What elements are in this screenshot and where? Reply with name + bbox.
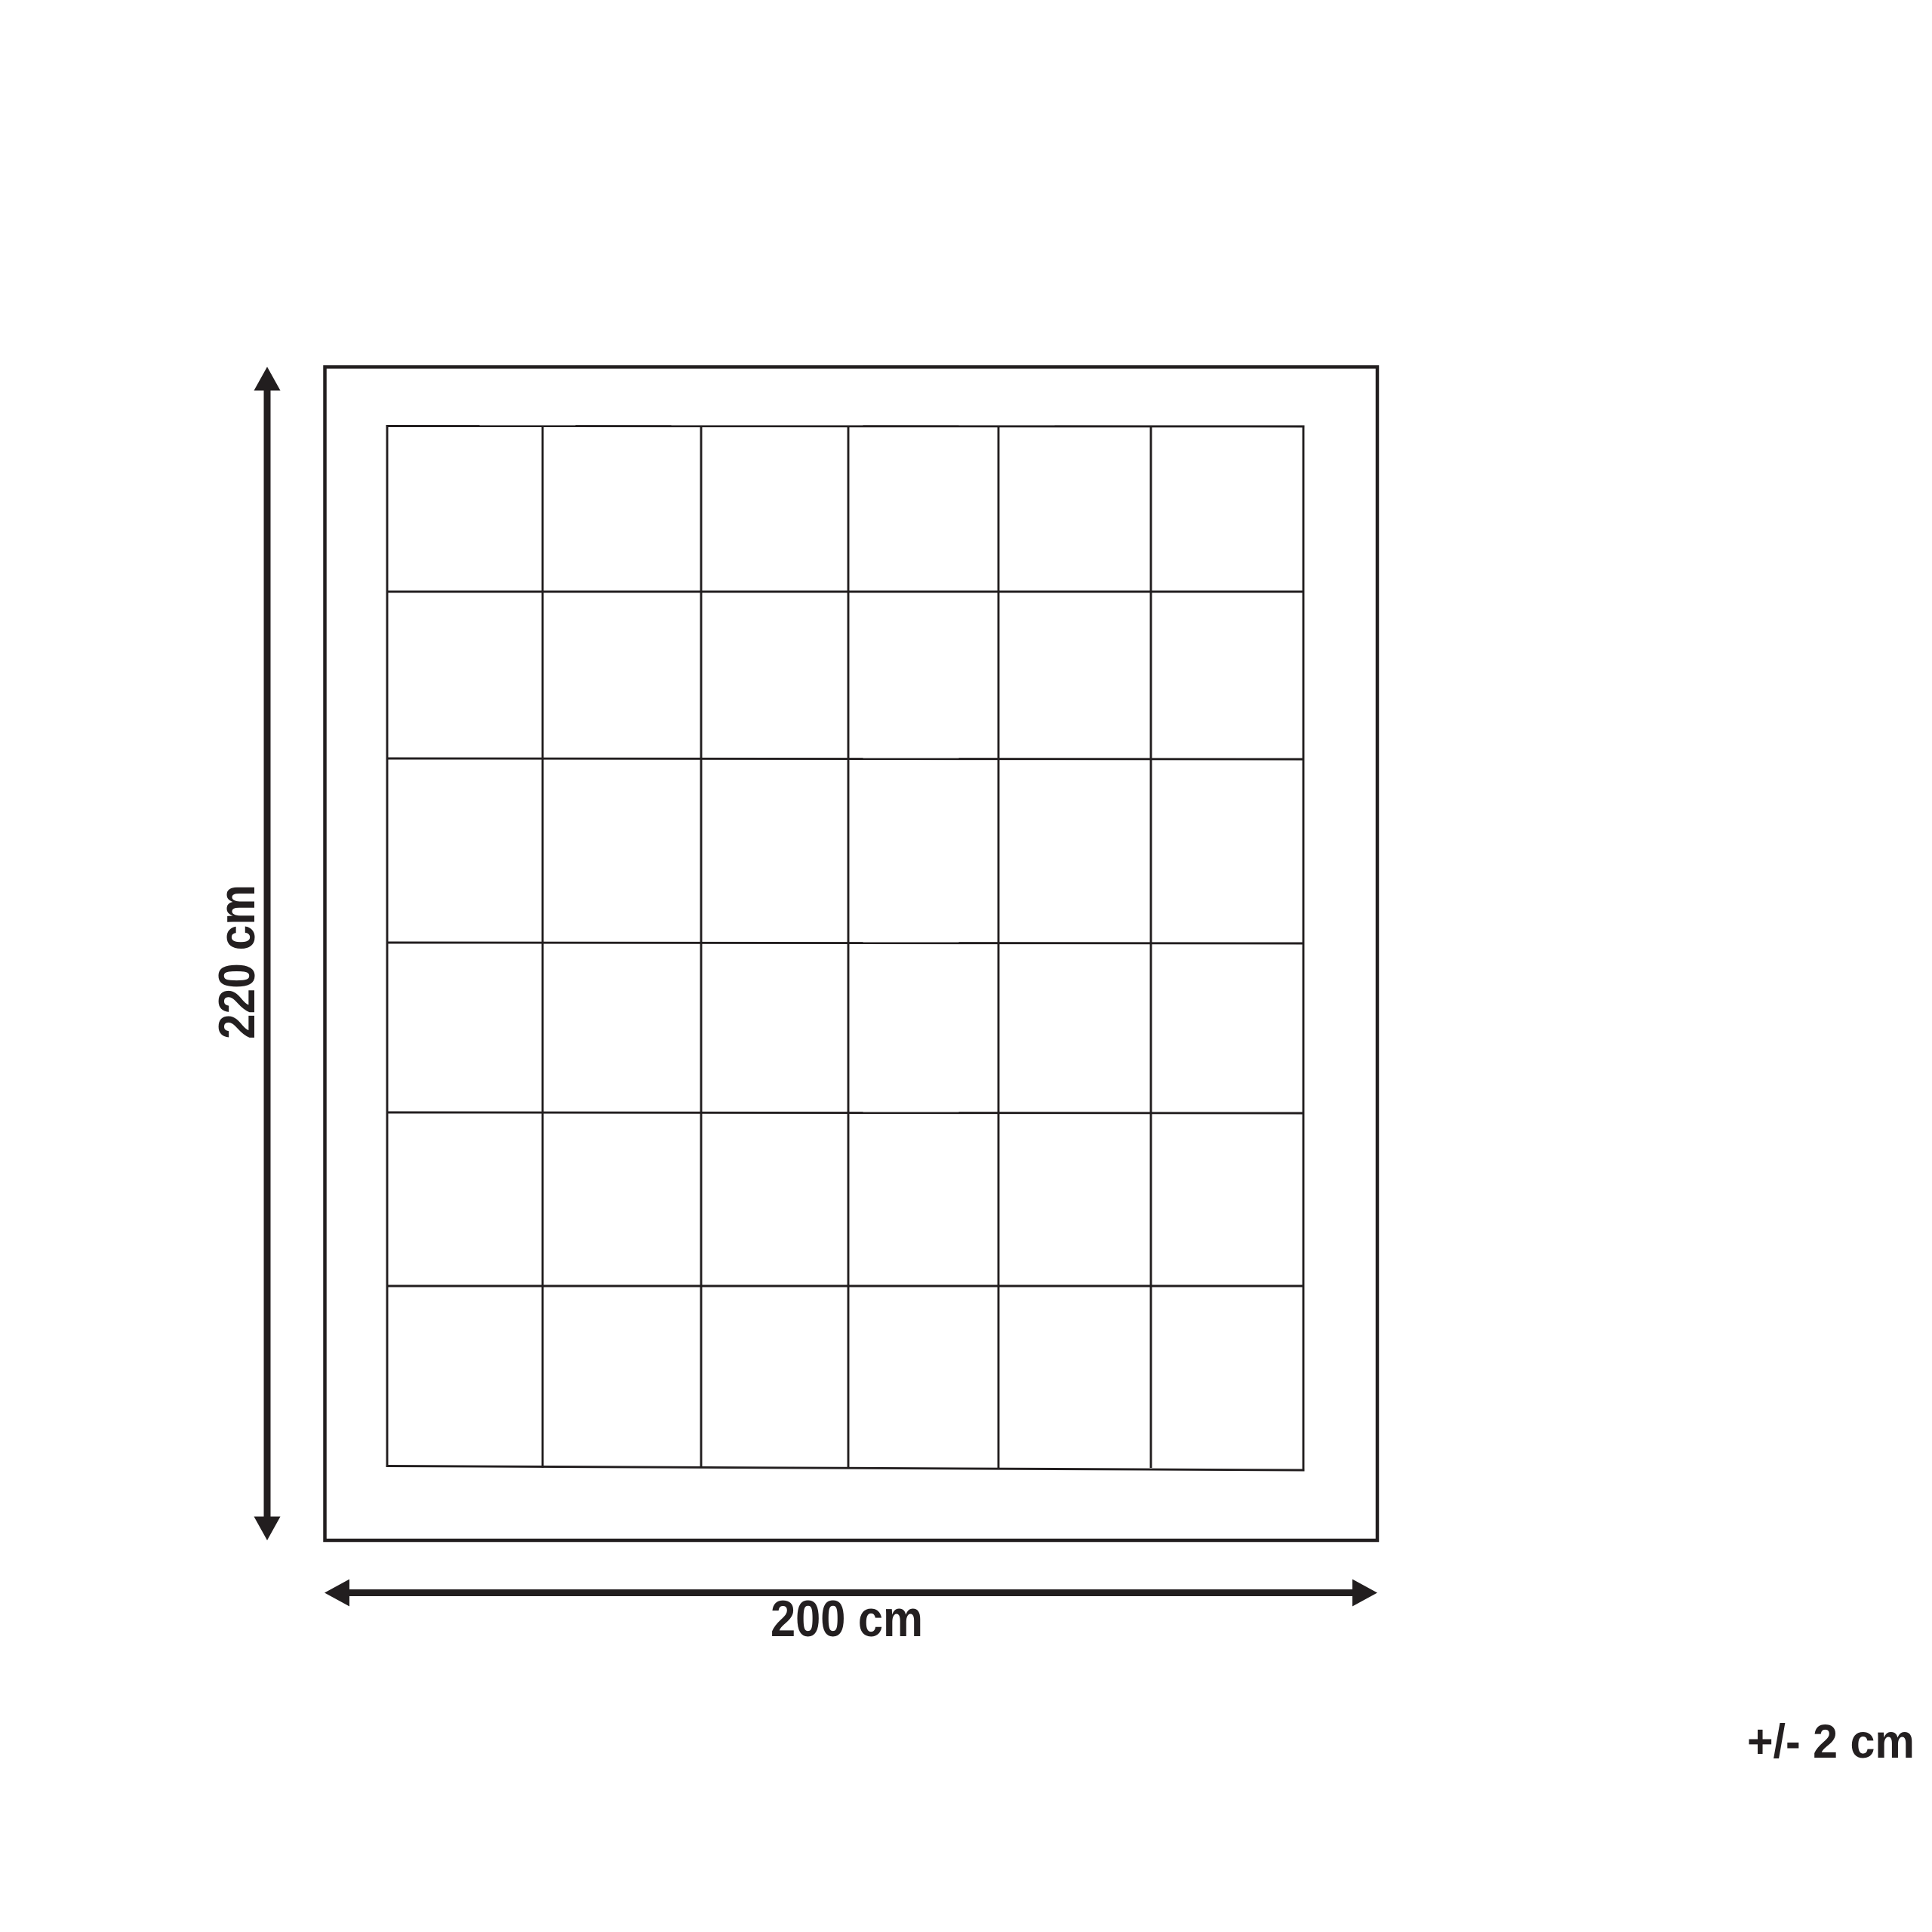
svg-text:220 cm: 220 cm — [208, 884, 266, 1039]
svg-text:+/- 2 cm: +/- 2 cm — [1747, 1715, 1915, 1768]
svg-text:200 cm: 200 cm — [771, 1590, 923, 1647]
